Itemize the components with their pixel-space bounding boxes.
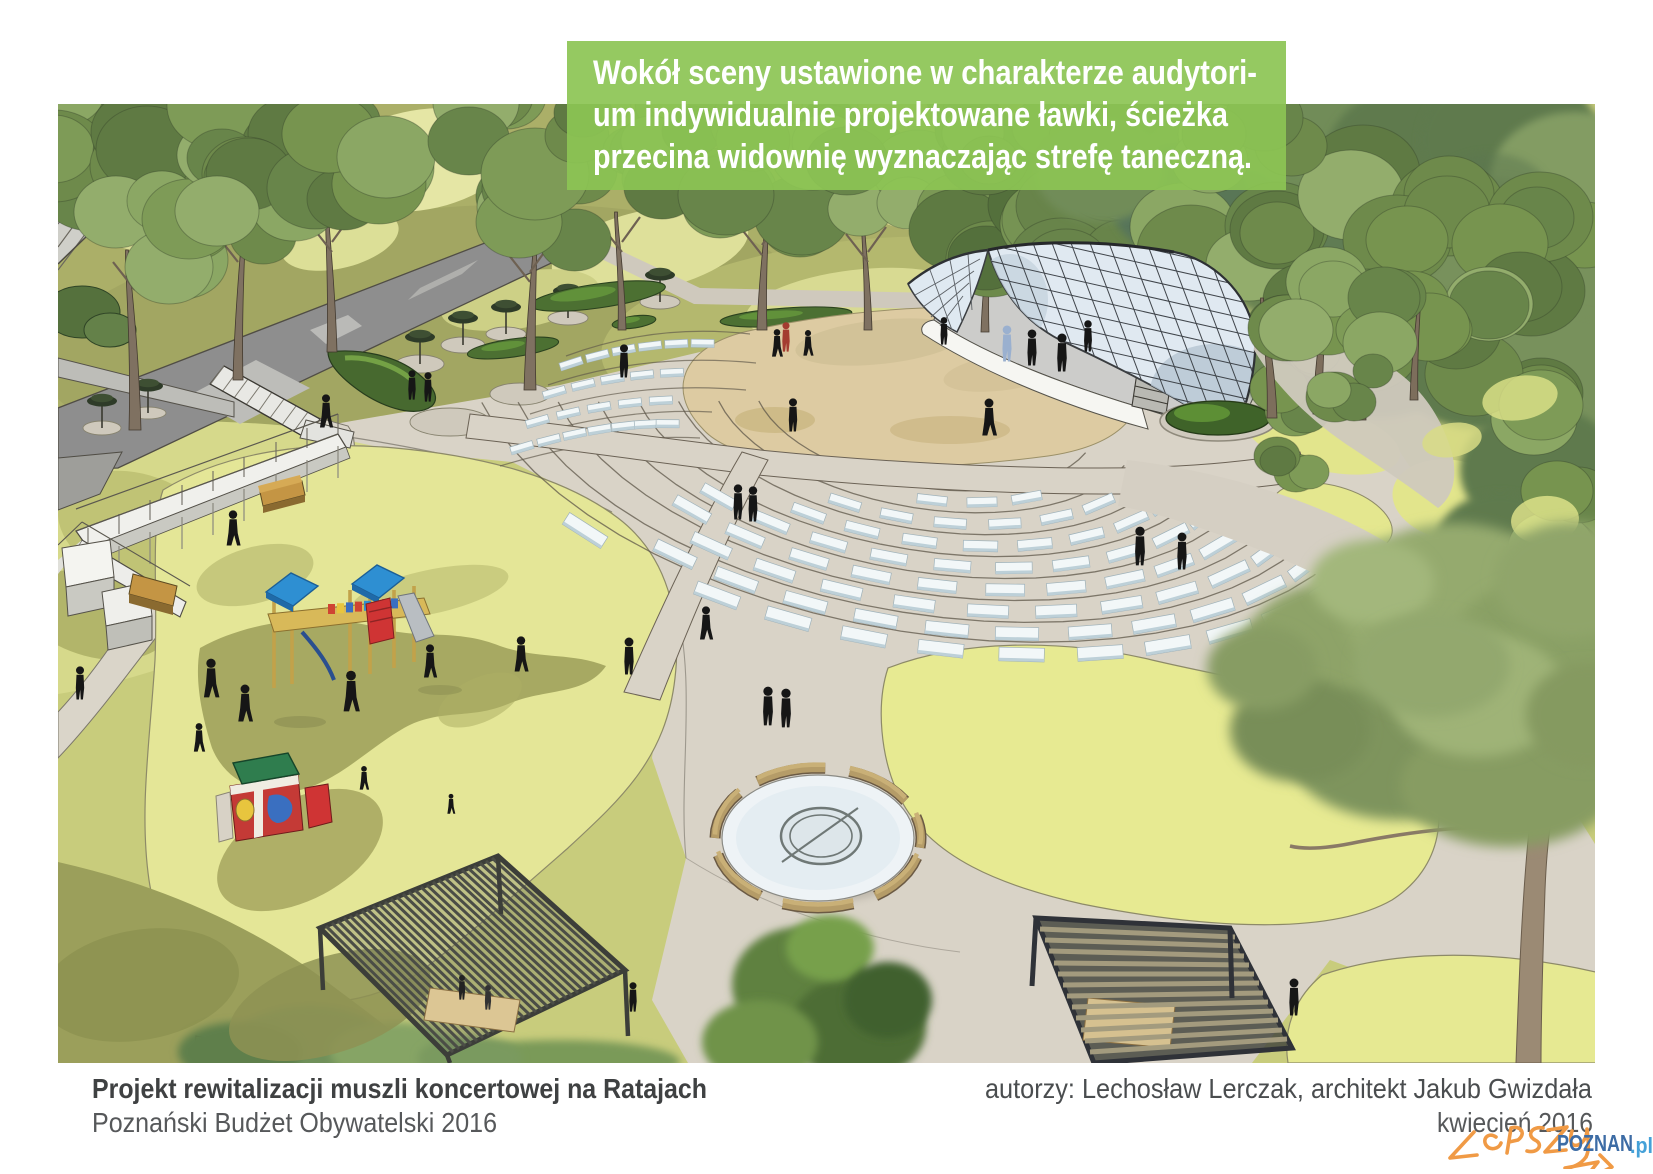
- svg-text:POZNAN: POZNAN: [1557, 1130, 1633, 1156]
- svg-text:autorzy: Lechosław Lerczak, ar: autorzy: Lechosław Lerczak, architekt Ja…: [985, 1073, 1592, 1104]
- svg-text:.pl: .pl: [1630, 1133, 1653, 1158]
- svg-text:Wokół sceny ustawione w charak: Wokół sceny ustawione w charakterze audy…: [593, 54, 1257, 92]
- svg-text:um indywidualnie projektowane: um indywidualnie projektowane ławki, ści…: [593, 96, 1229, 134]
- svg-text:Poznański Budżet Obywatelski 2: Poznański Budżet Obywatelski 2016: [92, 1107, 497, 1138]
- svg-text:Projekt rewitalizacji muszli k: Projekt rewitalizacji muszli koncertowej…: [92, 1073, 707, 1104]
- svg-text:przecina widownię wyznaczając: przecina widownię wyznaczając strefę tan…: [593, 138, 1252, 176]
